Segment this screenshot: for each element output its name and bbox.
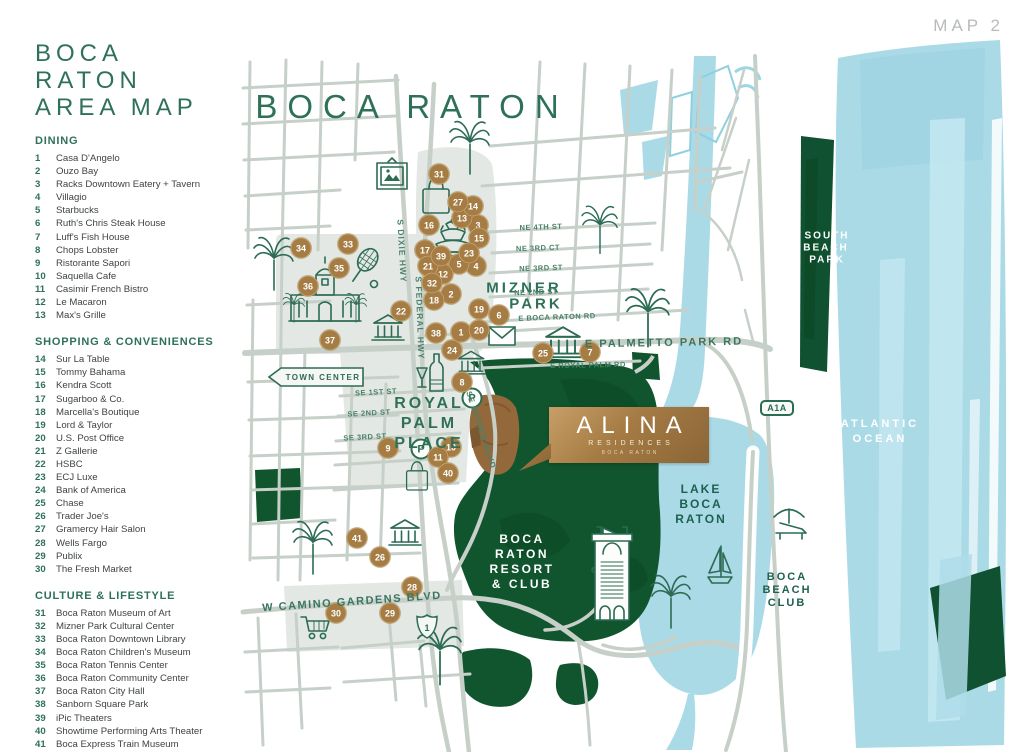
legend-item: 10Saquella Cafe — [35, 270, 240, 283]
legend-item-label: Max's Grille — [56, 309, 106, 322]
legend-item-number: 40 — [35, 725, 56, 738]
legend-item-label: Trader Joe's — [56, 510, 109, 523]
legend-item-label: Boca Raton Children's Museum — [56, 646, 191, 659]
legend-item-label: iPic Theaters — [56, 712, 112, 725]
legend-item-label: Publix — [56, 550, 82, 563]
legend-item-label: Kendra Scott — [56, 379, 111, 392]
legend-item-number: 9 — [35, 257, 56, 270]
legend-item-label: Boca Raton Tennis Center — [56, 659, 168, 672]
legend-item: 28Wells Fargo — [35, 537, 240, 550]
legend-item: 20U.S. Post Office — [35, 432, 240, 445]
legend-item-number: 8 — [35, 244, 56, 257]
legend-item-number: 31 — [35, 607, 56, 620]
legend-section-heading: SHOPPING & CONVENIENCES — [35, 336, 240, 348]
us1-label: 1 — [416, 614, 438, 639]
legend-item-label: Racks Downtown Eatery + Tavern — [56, 178, 200, 191]
legend-item-label: Marcella's Boutique — [56, 406, 139, 419]
legend-item-number: 26 — [35, 510, 56, 523]
legend-item-label: Boca Raton Community Center — [56, 672, 189, 685]
legend-item: 27Gramercy Hair Salon — [35, 523, 240, 536]
legend-item: 22HSBC — [35, 458, 240, 471]
us1-road-shield: 1 — [416, 614, 438, 639]
town-center-label: TOWN CENTER — [282, 366, 364, 388]
legend-item-number: 30 — [35, 563, 56, 576]
legend-item: 4Villagio — [35, 191, 240, 204]
legend-item: 12Le Macaron — [35, 296, 240, 309]
legend-item-label: Ouzo Bay — [56, 165, 98, 178]
legend-item: 13Max's Grille — [35, 309, 240, 322]
legend-item-label: Villagio — [56, 191, 87, 204]
legend-item: 41Boca Express Train Museum — [35, 738, 240, 751]
legend-item: 8Chops Lobster — [35, 244, 240, 257]
legend-item: 11Casimir French Bistro — [35, 283, 240, 296]
legend-item-label: Sanborn Square Park — [56, 698, 148, 711]
alina-residences-plaque: ALINA RESIDENCES BOCA RATON — [549, 407, 709, 463]
map-number-tag: MAP 2 — [933, 16, 1004, 36]
legend-item-label: Chops Lobster — [56, 244, 118, 257]
art-frame-icon — [377, 158, 407, 189]
legend-item: 19Lord & Taylor — [35, 419, 240, 432]
legend-item-number: 11 — [35, 283, 56, 296]
legend-item-number: 12 — [35, 296, 56, 309]
legend-item: 29Publix — [35, 550, 240, 563]
legend-item-number: 22 — [35, 458, 56, 471]
legend-item-number: 37 — [35, 685, 56, 698]
legend-item-label: Boca Raton City Hall — [56, 685, 145, 698]
legend-item-number: 18 — [35, 406, 56, 419]
legend-item: 24Bank of America — [35, 484, 240, 497]
legend-item-number: 24 — [35, 484, 56, 497]
legend-item-number: 3 — [35, 178, 56, 191]
a1a-road-badge: A1A — [760, 400, 794, 416]
a1a-label: A1A — [760, 400, 794, 416]
parking-icon: P — [411, 439, 432, 460]
legend-item: 5Starbucks — [35, 204, 240, 217]
legend-item-number: 27 — [35, 523, 56, 536]
legend-item: 31Boca Raton Museum of Art — [35, 607, 240, 620]
legend-item-label: Sugarboo & Co. — [56, 393, 124, 406]
legend-item: 40Showtime Performing Arts Theater — [35, 725, 240, 738]
legend-item: 16Kendra Scott — [35, 379, 240, 392]
legend-item-number: 5 — [35, 204, 56, 217]
legend-section-heading: DINING — [35, 135, 240, 147]
legend-item: 34Boca Raton Children's Museum — [35, 646, 240, 659]
legend-item: 2Ouzo Bay — [35, 165, 240, 178]
legend-item-number: 2 — [35, 165, 56, 178]
legend-panel: BOCA RATON AREA MAP DINING1Casa D'Angelo… — [35, 40, 240, 751]
legend-item: 6Ruth's Chris Steak House — [35, 217, 240, 230]
legend-item-label: Z Gallerie — [56, 445, 98, 458]
legend-item-label: Bank of America — [56, 484, 126, 497]
legend-item: 33Boca Raton Downtown Library — [35, 633, 240, 646]
legend-section-heading: CULTURE & LIFESTYLE — [35, 590, 240, 602]
legend-item: 37Boca Raton City Hall — [35, 685, 240, 698]
legend-item-number: 6 — [35, 217, 56, 230]
legend-item-number: 29 — [35, 550, 56, 563]
legend-item-number: 16 — [35, 379, 56, 392]
legend-item-number: 35 — [35, 659, 56, 672]
town-center-sign: TOWN CENTER — [266, 366, 366, 388]
legend-item-number: 1 — [35, 152, 56, 165]
legend-item-label: Gramercy Hair Salon — [56, 523, 146, 536]
legend-item-number: 7 — [35, 231, 56, 244]
legend-item-number: 33 — [35, 633, 56, 646]
legend-item-label: Showtime Performing Arts Theater — [56, 725, 202, 738]
legend-item: 7Luff's Fish House — [35, 231, 240, 244]
legend-item-label: Tommy Bahama — [56, 366, 125, 379]
legend-item: 14Sur La Table — [35, 353, 240, 366]
legend-item: 30The Fresh Market — [35, 563, 240, 576]
legend-item-label: Boca Express Train Museum — [56, 738, 179, 751]
legend-item: 9Ristorante Sapori — [35, 257, 240, 270]
legend-item: 23ECJ Luxe — [35, 471, 240, 484]
legend-item-label: Saquella Cafe — [56, 270, 116, 283]
parking-icon: P — [462, 388, 483, 409]
legend-item-label: The Fresh Market — [56, 563, 132, 576]
legend-item: 21Z Gallerie — [35, 445, 240, 458]
legend-item-label: Ristorante Sapori — [56, 257, 130, 270]
legend-item: 17Sugarboo & Co. — [35, 393, 240, 406]
legend-item-label: Casa D'Angelo — [56, 152, 120, 165]
page-title: BOCA RATON AREA MAP — [35, 40, 240, 121]
legend-item: 15Tommy Bahama — [35, 366, 240, 379]
legend-item: 26Trader Joe's — [35, 510, 240, 523]
legend-item: 3Racks Downtown Eatery + Tavern — [35, 178, 240, 191]
legend-item-number: 32 — [35, 620, 56, 633]
legend-item: 32Mizner Park Cultural Center — [35, 620, 240, 633]
legend-item-number: 10 — [35, 270, 56, 283]
beach-chair-icon — [774, 509, 806, 539]
legend-item: 1Casa D'Angelo — [35, 152, 240, 165]
legend-item: 25Chase — [35, 497, 240, 510]
legend-item-label: Boca Raton Museum of Art — [56, 607, 171, 620]
legend-item-label: Lord & Taylor — [56, 419, 112, 432]
legend-item-number: 20 — [35, 432, 56, 445]
legend-item-label: Starbucks — [56, 204, 99, 217]
legend-item-number: 36 — [35, 672, 56, 685]
legend-item-number: 15 — [35, 366, 56, 379]
legend-item: 39iPic Theaters — [35, 712, 240, 725]
legend-item-number: 25 — [35, 497, 56, 510]
alina-city: BOCA RATON — [599, 450, 659, 456]
legend-item-label: HSBC — [56, 458, 83, 471]
legend-item-number: 21 — [35, 445, 56, 458]
legend-item: 38Sanborn Square Park — [35, 698, 240, 711]
legend-item-number: 4 — [35, 191, 56, 204]
legend-item-number: 19 — [35, 419, 56, 432]
legend-item: 18Marcella's Boutique — [35, 406, 240, 419]
legend-item-label: Mizner Park Cultural Center — [56, 620, 174, 633]
legend-item-label: Boca Raton Downtown Library — [56, 633, 186, 646]
legend-item-label: ECJ Luxe — [56, 471, 98, 484]
legend-item: 36Boca Raton Community Center — [35, 672, 240, 685]
alina-subtitle: RESIDENCES — [584, 440, 674, 447]
envelope-icon — [489, 327, 515, 345]
legend-item-number: 28 — [35, 537, 56, 550]
legend-item-number: 41 — [35, 738, 56, 751]
legend-item-number: 13 — [35, 309, 56, 322]
legend-item-number: 23 — [35, 471, 56, 484]
legend-item-label: Luff's Fish House — [56, 231, 130, 244]
legend-item-number: 38 — [35, 698, 56, 711]
legend-item-label: Ruth's Chris Steak House — [56, 217, 166, 230]
legend-item-label: Le Macaron — [56, 296, 107, 309]
legend-item-label: Casimir French Bistro — [56, 283, 148, 296]
legend-item-label: Chase — [56, 497, 84, 510]
alina-name: ALINA — [567, 414, 690, 438]
legend-item: 35Boca Raton Tennis Center — [35, 659, 240, 672]
legend-item-number: 34 — [35, 646, 56, 659]
legend-item-number: 39 — [35, 712, 56, 725]
legend-item-label: Wells Fargo — [56, 537, 107, 550]
legend-item-number: 17 — [35, 393, 56, 406]
ocean-brush-stroke — [936, 554, 972, 720]
legend-item-label: Sur La Table — [56, 353, 110, 366]
legend-item-number: 14 — [35, 353, 56, 366]
legend-item-label: U.S. Post Office — [56, 432, 124, 445]
resort-tower-icon — [592, 527, 632, 620]
